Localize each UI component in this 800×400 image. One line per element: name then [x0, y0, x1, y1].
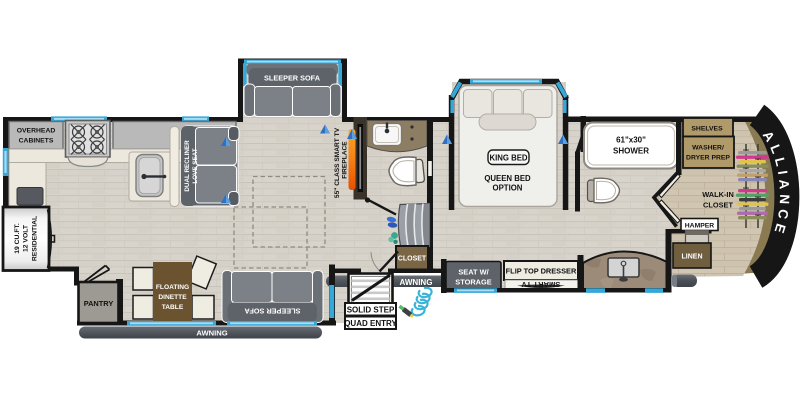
svg-text:DUAL RECLINER: DUAL RECLINER	[184, 140, 191, 192]
svg-text:PANTRY: PANTRY	[84, 299, 114, 308]
svg-text:CABINETS: CABINETS	[19, 138, 54, 145]
svg-text:SHOWER: SHOWER	[613, 147, 649, 156]
svg-text:LINEN: LINEN	[682, 254, 703, 261]
svg-text:CLOSET: CLOSET	[703, 201, 733, 210]
svg-text:CLOSET: CLOSET	[398, 256, 427, 263]
svg-text:WALK-IN: WALK-IN	[702, 190, 734, 199]
svg-text:12 VOLT: 12 VOLT	[23, 224, 30, 252]
svg-text:FLOATING: FLOATING	[156, 284, 189, 291]
svg-text:SOLID STEP: SOLID STEP	[347, 306, 395, 315]
svg-text:WASHER/: WASHER/	[692, 145, 724, 152]
svg-text:SEAT W/: SEAT W/	[458, 268, 488, 277]
svg-text:SMART TV: SMART TV	[521, 280, 561, 289]
svg-text:55" CLASS SMART TV: 55" CLASS SMART TV	[334, 127, 341, 198]
svg-text:KING BED: KING BED	[489, 154, 527, 163]
svg-text:FLIP TOP DRESSER: FLIP TOP DRESSER	[506, 267, 577, 276]
svg-text:TABLE: TABLE	[162, 304, 184, 311]
svg-text:DINETTE: DINETTE	[158, 294, 187, 301]
svg-text:FIREPLACE: FIREPLACE	[342, 141, 349, 179]
svg-text:RESIDENTIAL: RESIDENTIAL	[32, 216, 39, 261]
svg-text:QUAD ENTRY: QUAD ENTRY	[344, 319, 397, 328]
svg-text:QUEEN BED: QUEEN BED	[484, 174, 531, 183]
svg-text:AWNING: AWNING	[196, 329, 227, 338]
svg-text:19 CU.FT.: 19 CU.FT.	[14, 223, 21, 254]
svg-text:DRYER PREP: DRYER PREP	[686, 155, 730, 162]
svg-text:OPTION: OPTION	[493, 184, 523, 193]
svg-text:STORAGE: STORAGE	[455, 278, 491, 287]
svg-text:SLEEPER SOFA: SLEEPER SOFA	[244, 307, 301, 316]
svg-text:SHELVES: SHELVES	[691, 126, 723, 133]
svg-text:OVERHEAD: OVERHEAD	[17, 128, 56, 135]
svg-text:AWNING: AWNING	[400, 278, 433, 287]
svg-text:LOVE SEAT: LOVE SEAT	[192, 148, 199, 183]
svg-text:HAMPER: HAMPER	[685, 223, 715, 230]
svg-text:61"x30": 61"x30"	[616, 136, 646, 145]
svg-text:SLEEPER SOFA: SLEEPER SOFA	[264, 74, 321, 83]
